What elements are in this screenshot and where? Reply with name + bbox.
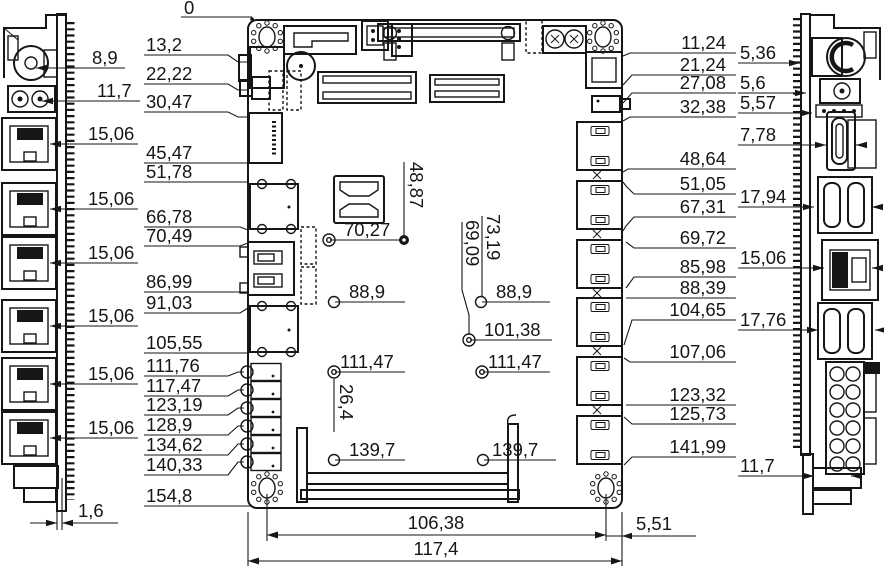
board-dimension-drawing: 0 13,2 22,22 30,47 45,47 51,78 66,78 70,… [0, 0, 884, 567]
mpcie-slot-2 [430, 75, 504, 102]
right-pcb-edge [801, 14, 810, 455]
right-bottom-bracket [803, 454, 861, 514]
dim-label: 13,2 [146, 34, 182, 55]
left-edge-usb-1 [250, 180, 298, 234]
left-bottom-bracket [14, 466, 58, 502]
dim-label: 5,51 [636, 513, 672, 534]
dim-label: 67,31 [680, 196, 726, 217]
dim-label: 88,9 [496, 281, 532, 302]
left-rj45-4 [2, 300, 56, 352]
left-rj45-6 [2, 412, 56, 464]
dim-label: 134,62 [146, 434, 203, 455]
dim-label: 117,47 [146, 375, 201, 396]
right-edge-connector-5 [577, 357, 622, 405]
top-pin-header [526, 20, 542, 53]
mpcie-slot-1 [318, 72, 416, 103]
dim-label: 123,19 [146, 394, 203, 415]
pin-header-d [301, 267, 316, 304]
mounting-hole-top-left [252, 21, 283, 53]
dim-label: 15,06 [88, 363, 134, 384]
pin-header-a [269, 71, 283, 110]
dimension-labels-center: 48,87 70,27 88,9 73,19 69,09 88,9 101,38… [330, 162, 556, 460]
dim-label: 91,03 [146, 292, 192, 313]
dim-label: 107,06 [669, 341, 726, 362]
right-edge-audio-jack [592, 96, 630, 112]
dim-label: 51,78 [146, 161, 192, 182]
dim-label: 11,24 [681, 32, 726, 53]
dim-label: 111,47 [488, 351, 542, 372]
left-terminal-block [8, 86, 55, 112]
dim-label-vertical: 26,4 [336, 384, 357, 420]
dim-label: 140,33 [146, 454, 203, 475]
dim-label: 70,27 [344, 219, 390, 240]
left-rj45-3 [2, 237, 56, 289]
dim-label-origin: 0 [184, 0, 194, 18]
left-edge-hdmi [249, 113, 282, 163]
technical-drawing-canvas: 0 13,2 22,22 30,47 45,47 51,78 66,78 70,… [0, 0, 884, 567]
dim-label: 15,06 [88, 305, 134, 326]
dim-label: 15,06 [88, 242, 134, 263]
dim-label: 15,06 [88, 417, 134, 438]
dim-label: 70,49 [146, 225, 192, 246]
dim-label: 123,32 [669, 384, 726, 405]
left-dc-jack [14, 46, 57, 80]
dim-label: 5,57 [740, 92, 776, 113]
pin-header-c [301, 227, 316, 264]
dim-label: 30,47 [146, 91, 192, 112]
right-edge-connector-6 [577, 416, 622, 464]
right-edge-connector-1 [577, 122, 622, 170]
right-rj45 [822, 240, 878, 300]
dim-label: 128,9 [146, 414, 192, 435]
dim-label: 15,06 [740, 247, 786, 268]
dim-label-vertical: 69,09 [462, 220, 483, 266]
dim-label: 111,47 [340, 351, 394, 372]
dim-label: 154,8 [146, 485, 192, 506]
right-dc-jack [812, 38, 865, 76]
dim-label: 1,6 [78, 500, 104, 521]
dim-label: 86,99 [146, 271, 192, 292]
dim-label: 27,08 [680, 72, 726, 93]
top-terminal-block [543, 26, 586, 53]
board-top-view [239, 17, 630, 508]
hole-48-87 [399, 235, 409, 245]
dim-label: 69,72 [680, 227, 726, 248]
sata-connector [284, 26, 356, 54]
pin-header-b [287, 71, 301, 110]
dim-label: 5,36 [740, 42, 776, 63]
dim-label: 7,78 [740, 124, 776, 145]
right-terminal-blocks [826, 362, 880, 474]
left-edge-rj45 [240, 242, 294, 295]
dim-label: 45,47 [146, 142, 192, 163]
dim-label: 139,7 [349, 439, 395, 460]
dim-label: 141,99 [669, 436, 726, 457]
dim-label-vertical: 73,19 [483, 214, 504, 260]
right-edge-connector-3 [577, 240, 622, 288]
dim-label: 106,38 [408, 512, 465, 533]
right-usb-stack-1 [818, 177, 872, 233]
right-edge-barrel-jack [586, 52, 622, 88]
dim-label: 15,06 [88, 188, 134, 209]
dim-label: 32,38 [680, 96, 726, 117]
left-edge-usb-2 [250, 302, 298, 357]
dim-label: 117,4 [414, 538, 459, 559]
dim-label: 8,9 [92, 47, 118, 68]
right-edge-connector-2 [577, 181, 622, 229]
dim-label: 5,6 [740, 72, 766, 93]
left-rj45-5 [2, 358, 56, 410]
dim-label: 15,06 [88, 123, 134, 144]
dim-label: 17,76 [740, 309, 786, 330]
dim-label: 48,64 [680, 148, 726, 169]
dim-label: 111,76 [146, 355, 200, 376]
dim-label: 66,78 [146, 206, 192, 227]
left-edge-dc-jack [239, 47, 315, 88]
dim-label: 11,7 [97, 80, 132, 101]
right-usb-stack-2 [818, 303, 872, 359]
sodimm-socket [297, 415, 519, 502]
battery-holder [334, 176, 384, 223]
dim-label: 88,39 [680, 277, 726, 298]
dim-label: 125,73 [669, 403, 726, 424]
dim-label-vertical: 48,87 [406, 162, 427, 208]
right-side-view [797, 14, 880, 514]
left-rj45-2 [2, 183, 56, 235]
dim-label: 139,7 [492, 439, 538, 460]
dim-label: 105,55 [146, 332, 203, 353]
dimension-labels-right-column: 11,24 21,24 27,08 32,38 48,64 51,05 67,3… [623, 32, 736, 465]
right-edge-connector-4 [577, 298, 622, 346]
dim-label: 101,38 [484, 319, 541, 340]
dim-label: 88,9 [349, 281, 385, 302]
left-rj45-1 [2, 118, 56, 170]
dim-label: 104,65 [669, 299, 726, 320]
dim-label: 17,94 [740, 186, 786, 207]
dimension-labels-left-column: 0 13,2 22,22 30,47 45,47 51,78 66,78 70,… [144, 0, 252, 506]
dim-label: 11,7 [740, 455, 775, 476]
dim-pcb-thickness: 1,6 [30, 478, 118, 530]
dimension-bottom: 106,38 117,4 5,51 [248, 494, 696, 566]
dim-label: 85,98 [680, 256, 726, 277]
mounting-hole-top-right [588, 21, 619, 53]
dim-label: 51,05 [680, 173, 726, 194]
origin-point [250, 17, 254, 21]
dim-label: 22,22 [146, 63, 192, 84]
